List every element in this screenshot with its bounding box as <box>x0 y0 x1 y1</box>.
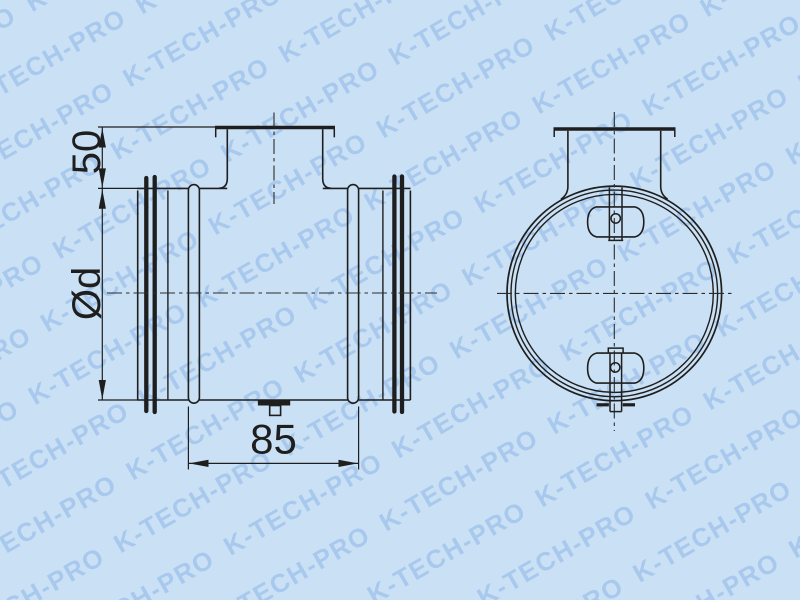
bottom-wing-bracket <box>588 353 644 383</box>
front-spigot-neck-right <box>661 131 668 200</box>
right-view <box>497 112 732 431</box>
arrowhead-diameter-down <box>99 380 106 400</box>
dimension-label-diameter: Ød <box>65 267 109 320</box>
dimension-label-85: 85 <box>250 416 297 463</box>
arrowhead-diameter-up <box>99 189 106 209</box>
technical-drawing: 50 Ød 85 <box>0 0 800 600</box>
rolled-bead-right <box>348 185 359 404</box>
bottom-bracket-stud <box>270 406 281 416</box>
rolled-bead-left <box>188 185 199 404</box>
drawing-canvas: K-TECH-PRO K-TECH-PRO K-TECH-PRO K-TECH-… <box>0 0 800 600</box>
arrowhead-85-right <box>339 460 359 467</box>
arrowhead-85-left <box>189 460 209 467</box>
top-bolt-hole <box>611 214 620 223</box>
top-wing-bracket <box>588 207 644 237</box>
bottom-bolt-hole <box>611 363 620 372</box>
dimension-label-50: 50 <box>65 130 109 175</box>
front-spigot-neck-left <box>561 131 568 200</box>
spigot-neck-left <box>219 129 228 188</box>
spigot-neck-right <box>323 129 332 188</box>
dimension-labels: 50 Ød 85 <box>65 130 297 463</box>
